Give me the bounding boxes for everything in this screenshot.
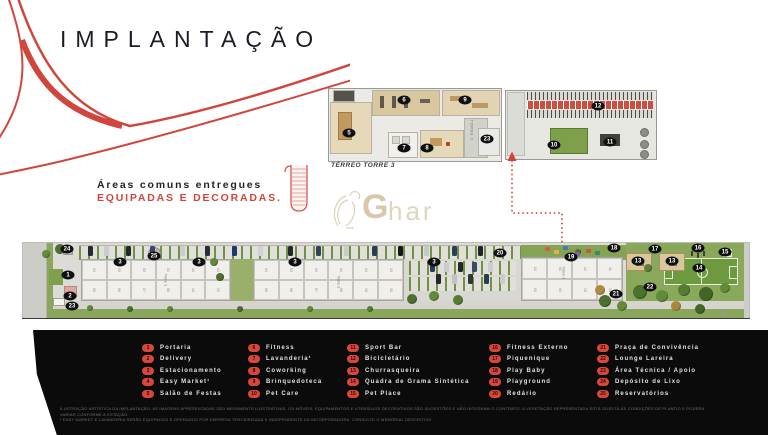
plan-marker-17: 17: [649, 245, 662, 254]
legend-label: Portaria: [160, 345, 191, 351]
tree: [595, 285, 605, 295]
plan-marker-12: 12: [592, 102, 605, 111]
parked-car: [288, 246, 293, 256]
plan-marker-2: 2: [64, 292, 77, 301]
legend-item: 21Praça de Convivência: [597, 344, 699, 352]
legend-item: 4Easy Market¹: [142, 378, 222, 386]
parked-car: [472, 262, 477, 272]
parked-car: [478, 246, 483, 256]
plan-marker-5: 5: [343, 129, 356, 138]
unit-number: 01: [339, 268, 343, 272]
legend-item: 2Delivery: [142, 355, 222, 363]
residential-building: 0201121103041314: [521, 257, 623, 301]
slide-ladder-icon: [280, 160, 316, 218]
legend-item: 5Salão de Festas: [142, 390, 222, 398]
playground-item: [554, 250, 559, 254]
legend-number-badge: 24: [597, 378, 609, 386]
unit-number: 08: [339, 288, 343, 292]
unit-number: 15: [216, 288, 220, 292]
parked-car: [372, 246, 377, 256]
legend-item: 13Churrasqueira: [347, 367, 470, 375]
unit-number: 05: [92, 288, 96, 292]
parked-car: [316, 246, 321, 256]
unit-number: 05: [264, 288, 268, 292]
legend-item: 19Playground: [489, 378, 569, 386]
tree: [453, 295, 463, 305]
plan-marker-23: 23: [481, 135, 494, 144]
unit-number: 02: [314, 268, 318, 272]
legend-number-badge: 10: [248, 390, 260, 398]
unit-number: 02: [533, 267, 537, 271]
building-unit: 13: [572, 279, 597, 300]
legend-item: 24Depósito de Lixo: [597, 378, 699, 386]
legend-number-badge: 4: [142, 378, 154, 386]
legend-label: Fitness Externo: [507, 345, 569, 351]
plan-marker-3: 3: [428, 258, 441, 267]
tower-label: Torre 2: [337, 276, 342, 288]
legend-item: 10Pet Care: [248, 390, 322, 398]
legend-label: Reservatórios: [615, 391, 669, 397]
tree: [599, 295, 611, 307]
building-unit: 04: [547, 279, 572, 300]
building-unit: 12: [572, 258, 597, 279]
building-unit: 06: [107, 280, 132, 300]
plan-marker-3: 3: [114, 258, 127, 267]
plan-marker-18: 18: [608, 244, 621, 253]
building-row: 040302011413: [254, 260, 403, 280]
unit-number: 12: [583, 267, 587, 271]
building-row: 040303011413: [82, 260, 230, 280]
building-unit: 16: [181, 280, 206, 300]
legend-label: Playground: [507, 379, 551, 385]
building-unit: 06: [279, 280, 304, 300]
plan-marker-8: 8: [421, 144, 434, 153]
legend-number-badge: 23: [597, 367, 609, 375]
tree: [367, 306, 373, 312]
tagline-line2: EQUIPADAS E DECORADAS.: [97, 192, 282, 205]
page-title: IMPLANTAÇÃO: [60, 26, 322, 53]
tree: [695, 304, 705, 314]
parked-car: [398, 246, 403, 256]
unit-number: 03: [117, 268, 121, 272]
plan-marker-25: 25: [148, 252, 161, 261]
legend-label: Delivery: [160, 356, 192, 362]
legend-label: Depósito de Lixo: [615, 379, 681, 385]
coworking-chair: [446, 142, 450, 146]
legend-label: Pet Place: [365, 391, 402, 397]
legend-number-badge: 22: [597, 355, 609, 363]
legend-number-badge: 20: [489, 390, 501, 398]
building-row: 050607081615: [82, 280, 230, 300]
tree: [127, 306, 133, 312]
legend-item: 23Área Técnica / Apoio: [597, 367, 699, 375]
tower-label: Torre 3: [562, 267, 567, 279]
parked-car: [436, 274, 441, 284]
parked-car: [104, 246, 109, 256]
umbrella-table: [640, 150, 649, 159]
parked-car: [444, 262, 449, 272]
unit-number: 03: [142, 268, 146, 272]
bike-rack-row: [527, 92, 653, 100]
plan-marker-3: 3: [289, 258, 302, 267]
legend-label: Lavanderia¹: [266, 356, 312, 362]
residential-building: 040302011413050607081615: [253, 259, 404, 301]
legend-number-badge: 8: [248, 367, 260, 375]
parked-car: [126, 246, 131, 256]
tree: [644, 264, 652, 272]
legend-item: 25Reservatórios: [597, 390, 699, 398]
bike-rack-row: [527, 110, 653, 118]
building-unit: 05: [254, 280, 279, 300]
legend-item: 8Coworking: [248, 367, 322, 375]
parked-car: [500, 274, 505, 284]
building-unit: 14: [353, 260, 378, 280]
building-unit: 11: [597, 258, 622, 279]
legend-label: Sport Bar: [365, 345, 402, 351]
playground-item: [595, 251, 600, 255]
unit-number: 01: [166, 268, 170, 272]
tree: [678, 284, 690, 296]
legend-number-badge: 12: [347, 355, 359, 363]
unit-number: 03: [533, 288, 537, 292]
room-brinquedoteca: [442, 90, 500, 116]
tree: [699, 287, 713, 301]
legend-item: 9Brinquedoteca: [248, 378, 322, 386]
disclaimer: ILUSTRAÇÃO ARTÍSTICA DA IMPLANTAÇÃO. AS …: [60, 406, 710, 423]
building-unit: 05: [82, 280, 107, 300]
plan-marker-9: 9: [459, 96, 472, 105]
legend-number-badge: 15: [347, 390, 359, 398]
gym-bench: [420, 99, 430, 103]
unit-number: 11: [607, 267, 611, 271]
parked-car: [258, 246, 263, 256]
building-unit: 03: [522, 279, 547, 300]
legend-label: Redário: [507, 391, 537, 397]
legend-item: 1Portaria: [142, 344, 222, 352]
legend-number-badge: 7: [248, 355, 260, 363]
unit-number: 04: [264, 268, 268, 272]
legend-column: 21Praça de Convivência22Lounge Lareira23…: [597, 344, 699, 401]
building-unit: 07: [304, 280, 329, 300]
tree: [42, 250, 50, 258]
building-unit: 03: [131, 260, 156, 280]
legend-label: Easy Market¹: [160, 379, 210, 385]
tower-label: Torre 1: [164, 274, 169, 286]
legend-item: 3Estacionamento: [142, 367, 222, 375]
tree: [210, 258, 218, 266]
connector-arrow-icon: [508, 152, 517, 162]
building-unit: 04: [82, 260, 107, 280]
parked-car: [88, 246, 93, 256]
unit-number: 06: [289, 288, 293, 292]
legend-column: 11Sport Bar12Bicicletário13Churrasqueira…: [347, 344, 470, 401]
legend-column: 1Portaria2Delivery3Estacionamento4Easy M…: [142, 344, 222, 401]
legend-label: Estacionamento: [160, 368, 222, 374]
residential-building: 040303011413050607081615: [81, 259, 231, 301]
unit-number: 04: [92, 268, 96, 272]
legend-item: 20Redário: [489, 390, 569, 398]
legend-number-badge: 3: [142, 367, 154, 375]
parked-car: [205, 246, 210, 256]
building-unit: 02: [522, 258, 547, 279]
room-kitchen-support: [333, 90, 355, 102]
watermark-ghar: G har: [330, 186, 470, 234]
unit-number: 14: [191, 268, 195, 272]
legend-item: 14Quadra de Grama Sintética: [347, 378, 470, 386]
umbrella-table: [640, 140, 649, 149]
plan-marker-13: 13: [632, 257, 645, 266]
plan-marker-10: 10: [548, 141, 561, 150]
tree: [720, 283, 730, 293]
implantacao-poster: IMPLANTAÇÃO Áreas comuns entregues EQUIP…: [0, 0, 768, 435]
building-unit: 15: [378, 280, 403, 300]
tree: [87, 305, 93, 311]
tree: [237, 306, 243, 312]
unit-number: 03: [289, 268, 293, 272]
building-unit: 13: [378, 260, 403, 280]
legend-number-badge: 19: [489, 378, 501, 386]
parked-car: [458, 262, 463, 272]
legend-label: Praça de Convivência: [615, 345, 699, 351]
legend-number-badge: 16: [489, 344, 501, 352]
legend-number-badge: 25: [597, 390, 609, 398]
plan-marker-3: 3: [193, 258, 206, 267]
legend-label: Quadra de Grama Sintética: [365, 379, 470, 385]
legend-number-badge: 14: [347, 378, 359, 386]
tree: [216, 273, 224, 281]
plan-marker-22: 22: [644, 283, 657, 292]
unit-number: 04: [558, 288, 562, 292]
building-unit: 04: [254, 260, 279, 280]
building-unit: 07: [131, 280, 156, 300]
unit-number: 16: [364, 288, 368, 292]
tagline-line1: Áreas comuns entregues: [97, 179, 282, 192]
legend-label: Lounge Lareira: [615, 356, 674, 362]
watermark-light-letters: har: [388, 196, 435, 227]
plan-marker-11: 11: [604, 138, 617, 147]
unit-number: 08: [166, 288, 170, 292]
unit-number: 13: [389, 268, 393, 272]
playground-item: [586, 249, 591, 253]
unit-number: 06: [117, 288, 121, 292]
gym-equipment: [380, 96, 384, 108]
plan-marker-16: 16: [692, 244, 705, 253]
washer: [392, 136, 400, 144]
legend-column: 6Fitness7Lavanderia¹8Coworking9Brinquedo…: [248, 344, 322, 401]
tree: [656, 290, 668, 302]
parked-car: [232, 246, 237, 256]
disclaimer-line2: ¹ EASY MARKET E LAVANDERIA SERÃO EQUIPAD…: [60, 417, 710, 423]
legend-number-badge: 2: [142, 355, 154, 363]
tree: [307, 306, 313, 312]
parked-car: [452, 274, 457, 284]
tree: [407, 294, 417, 304]
plan-marker-15: 15: [719, 248, 732, 257]
plan-marker-23: 23: [66, 302, 79, 311]
tree: [617, 301, 627, 311]
parked-car: [468, 274, 473, 284]
building-unit: 02: [304, 260, 329, 280]
plan-marker-13: 13: [666, 257, 679, 266]
disclaimer-line1: ILUSTRAÇÃO ARTÍSTICA DA IMPLANTAÇÃO. AS …: [60, 406, 710, 417]
plan-marker-6: 6: [398, 96, 411, 105]
play-table: [472, 103, 488, 108]
parked-car: [488, 262, 493, 272]
unit-number: 14: [364, 268, 368, 272]
tree: [429, 291, 439, 301]
legend-number-badge: 13: [347, 367, 359, 375]
legend-label: Pet Care: [266, 391, 299, 397]
legend-item: 17Piquenique: [489, 355, 569, 363]
parked-car: [452, 246, 457, 256]
plan-marker-24: 24: [61, 245, 74, 254]
legend-label: Coworking: [266, 368, 307, 374]
watermark-bold-letter: G: [362, 188, 388, 227]
floorplan-tower-label: TORRE 3: [470, 120, 475, 141]
legend-number-badge: 9: [248, 378, 260, 386]
gym-equipment: [392, 96, 396, 108]
legend-label: Play Baby: [507, 368, 546, 374]
legend-label: Bicicletário: [365, 356, 411, 362]
legend-item: 15Pet Place: [347, 390, 470, 398]
tagline: Áreas comuns entregues EQUIPADAS E DECOR…: [97, 179, 282, 205]
tree: [167, 306, 173, 312]
legend-label: Piquenique: [507, 356, 550, 362]
unit-number: 07: [142, 288, 146, 292]
legend-item: 7Lavanderia¹: [248, 355, 322, 363]
unit-number: 07: [314, 288, 318, 292]
legend-item: 22Lounge Lareira: [597, 355, 699, 363]
parked-car: [424, 246, 429, 256]
legend-item: 11Sport Bar: [347, 344, 470, 352]
legend-item: 12Bicicletário: [347, 355, 470, 363]
legend-column: 16Fitness Externo17Piquenique18Play Baby…: [489, 344, 569, 401]
legend-number-badge: 6: [248, 344, 260, 352]
plan-marker-21: 21: [610, 290, 623, 299]
legend-number-badge: 1: [142, 344, 154, 352]
plan-marker-20: 20: [494, 249, 507, 258]
legend-item: 18Play Baby: [489, 367, 569, 375]
building-unit: 16: [353, 280, 378, 300]
legend-number-badge: 11: [347, 344, 359, 352]
parked-car: [180, 246, 185, 256]
connector-dotted-line: [495, 145, 585, 250]
umbrella-table: [640, 128, 649, 137]
legend-number-badge: 17: [489, 355, 501, 363]
unit-number: 15: [389, 288, 393, 292]
lion-logo-icon: [330, 186, 364, 232]
legend-label: Área Técnica / Apoio: [615, 368, 696, 374]
plan-marker-19: 19: [565, 253, 578, 262]
plan-marker-7: 7: [398, 144, 411, 153]
parked-car: [484, 274, 489, 284]
legend-label: Salão de Festas: [160, 391, 222, 397]
legend-item: 16Fitness Externo: [489, 344, 569, 352]
tree: [671, 301, 681, 311]
legend-label: Churrasqueira: [365, 368, 420, 374]
legend-number-badge: 18: [489, 367, 501, 375]
legend-item: 6Fitness: [248, 344, 322, 352]
building-unit: 15: [205, 280, 230, 300]
legend-number-badge: 21: [597, 344, 609, 352]
unit-number: 16: [191, 288, 195, 292]
floorplan-caption: TÉRREO TORRE 3: [331, 162, 395, 169]
parked-car: [344, 246, 349, 256]
unit-number: 13: [583, 288, 587, 292]
legend-label: Brinquedoteca: [266, 379, 322, 385]
plan-marker-14: 14: [693, 264, 706, 273]
building-row: 050607081615: [254, 280, 403, 300]
plan-marker-1: 1: [62, 271, 75, 280]
legend-footer: 1Portaria2Delivery3Estacionamento4Easy M…: [0, 330, 768, 435]
legend-label: Fitness: [266, 345, 295, 351]
legend-number-badge: 5: [142, 390, 154, 398]
unit-number: 13: [216, 268, 220, 272]
bicicletario-lane: [527, 101, 653, 109]
